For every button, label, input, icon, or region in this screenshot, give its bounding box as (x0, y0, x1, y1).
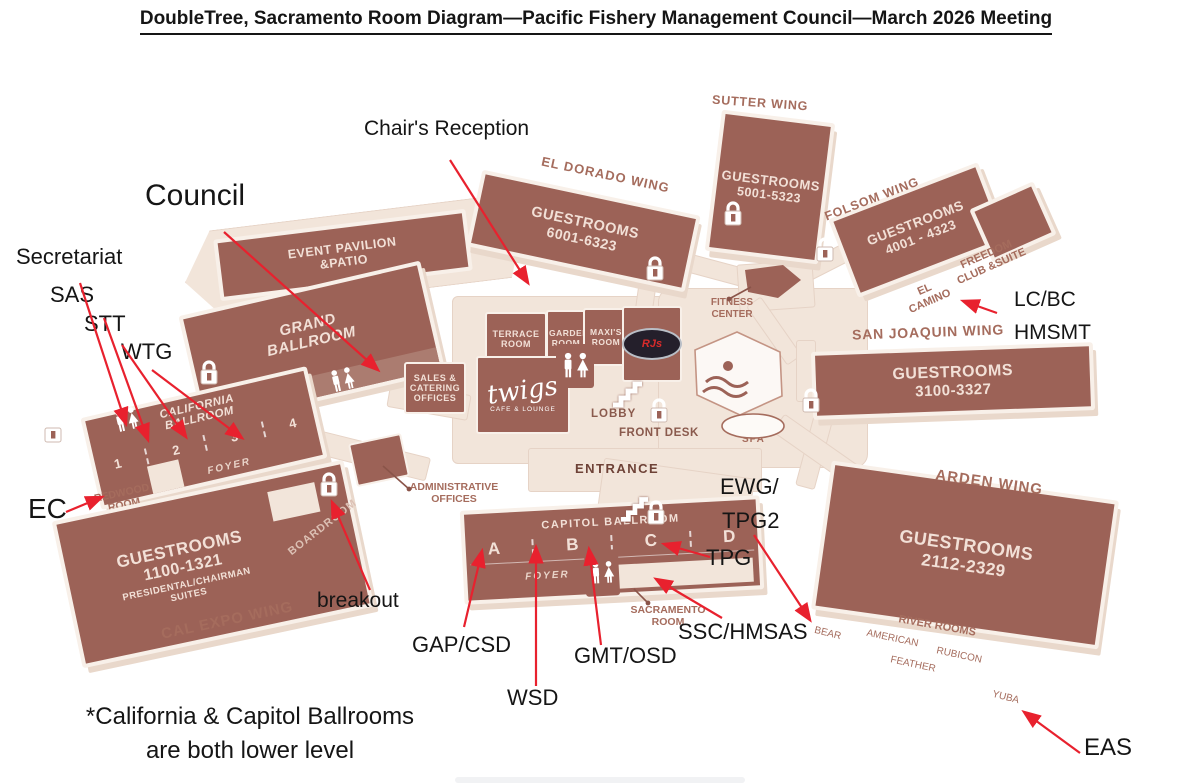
elevator-icon (318, 472, 340, 499)
callout-ewg-line1: EWG/ (720, 475, 779, 498)
california-section-4: 4 (287, 415, 297, 431)
callout-council: Council (145, 180, 245, 212)
restroom-icon (587, 555, 619, 591)
building-san-joaquin-wing: GUESTROOMS 3100-3327 (811, 342, 1095, 420)
section-divider (532, 539, 535, 555)
elevator-icon (42, 418, 64, 445)
twigs-logo: twigs (486, 373, 560, 409)
restroom-icon (559, 347, 593, 385)
capitol-section-a: A (487, 539, 500, 560)
callout-wsd: WSD (507, 686, 558, 709)
room-diagram: DoubleTree, Sacramento Room Diagram—Paci… (0, 0, 1192, 783)
callout-chairs-reception: Chair's Reception (364, 118, 529, 140)
california-foyer-label: FOYER (206, 456, 252, 477)
rjs-logo: RJs (622, 328, 682, 360)
admin-offices-label: ADMINISTRATIVE OFFICES (395, 481, 513, 505)
river-room-feather: FEATHER (889, 654, 936, 675)
capitol-section-c: C (644, 531, 657, 552)
fitness-line1: FITNESS (700, 297, 764, 309)
california-section-1: 1 (112, 455, 122, 471)
callout-breakout: breakout (317, 590, 399, 612)
room-sales-catering: SALES & CATERING OFFICES (404, 362, 466, 414)
entrance-label: ENTRANCE (575, 461, 659, 476)
fitness-center-label: FITNESS CENTER (700, 297, 764, 320)
callout-ewg-line2: TPG2 (722, 509, 779, 532)
callout-gap-csd: GAP/CSD (412, 633, 511, 656)
callout-wtg: WTG (121, 340, 172, 363)
elevator-icon (722, 201, 744, 228)
california-section-2: 2 (171, 441, 181, 457)
callout-hmsmt: HMSMT (1014, 322, 1091, 344)
california-notch (147, 459, 184, 493)
callout-secretariat: Secretariat (16, 245, 122, 268)
terrace-room-label: TERRACE ROOM (490, 329, 542, 349)
grand-ballroom-label: GRAND BALLROOM (252, 304, 367, 362)
rjs-logo-text: RJs (642, 338, 662, 350)
callout-eas: EAS (1084, 735, 1132, 760)
footnote-line2: are both lower level (40, 734, 460, 768)
building-arden-wing: GUESTROOMS 2112-2329 (811, 461, 1119, 650)
front-desk-label: FRONT DESK (619, 427, 699, 439)
capitol-section-b: B (566, 535, 579, 556)
california-section-3: 3 (229, 428, 239, 444)
river-room-bear: BEAR (813, 625, 842, 643)
elevator-icon (644, 256, 666, 283)
sacramento-line1: SACRAMENTO (622, 604, 714, 616)
river-room-yuba: YUBA (991, 689, 1020, 707)
arrow-lc-bc (963, 301, 997, 313)
stairs-icon (618, 492, 650, 524)
wing-label-san-joaquin: SAN JOAQUIN WING (852, 321, 1005, 342)
room-admin-offices (348, 433, 410, 487)
section-divider (261, 421, 267, 437)
callout-ssc-hmsas: SSC/HMSAS (678, 620, 808, 643)
section-divider (202, 435, 208, 451)
san-joaquin-range: 3100-3327 (915, 380, 992, 400)
callout-sas: SAS (50, 283, 94, 306)
fitness-line2: CENTER (700, 309, 764, 321)
callout-gmt-osd: GMT/OSD (574, 644, 677, 667)
section-divider (689, 531, 692, 547)
footnote-line1: *California & Capitol Ballrooms (40, 700, 460, 734)
page-title-wrap: DoubleTree, Sacramento Room Diagram—Paci… (0, 8, 1192, 35)
callout-lc-bc: LC/BC (1014, 289, 1076, 311)
sales-catering-label: SALES & CATERING OFFICES (409, 373, 461, 403)
spa-label: SPA (742, 434, 765, 446)
admin-line2: OFFICES (395, 493, 513, 505)
callout-stt: STT (84, 312, 126, 335)
capitol-foyer-strip: FOYER (525, 564, 570, 584)
california-foyer-strip: FOYER (205, 451, 252, 479)
elevator-icon (800, 388, 822, 415)
callout-tpg: TPG (706, 546, 751, 569)
capitol-foyer-label: FOYER (525, 569, 570, 582)
callout-ec: EC (28, 494, 67, 523)
stairs-icon (610, 376, 644, 410)
elevator-icon (814, 237, 836, 264)
el-camino-label: EL CAMINO (902, 275, 953, 316)
page-title: DoubleTree, Sacramento Room Diagram—Paci… (140, 8, 1052, 35)
river-room-rubicon: RUBICON (935, 645, 983, 666)
san-joaquin-guestrooms: GUESTROOMS (892, 361, 1013, 383)
footnote: *California & Capitol Ballrooms are both… (40, 700, 460, 767)
arrow-eas (1024, 712, 1080, 753)
section-divider (144, 448, 150, 464)
river-room-american: AMERICAN (865, 628, 919, 650)
elevator-icon (198, 360, 220, 387)
elevator-icon (648, 398, 670, 425)
admin-line1: ADMINISTRATIVE (395, 481, 513, 493)
bottom-crop-line (455, 777, 745, 783)
